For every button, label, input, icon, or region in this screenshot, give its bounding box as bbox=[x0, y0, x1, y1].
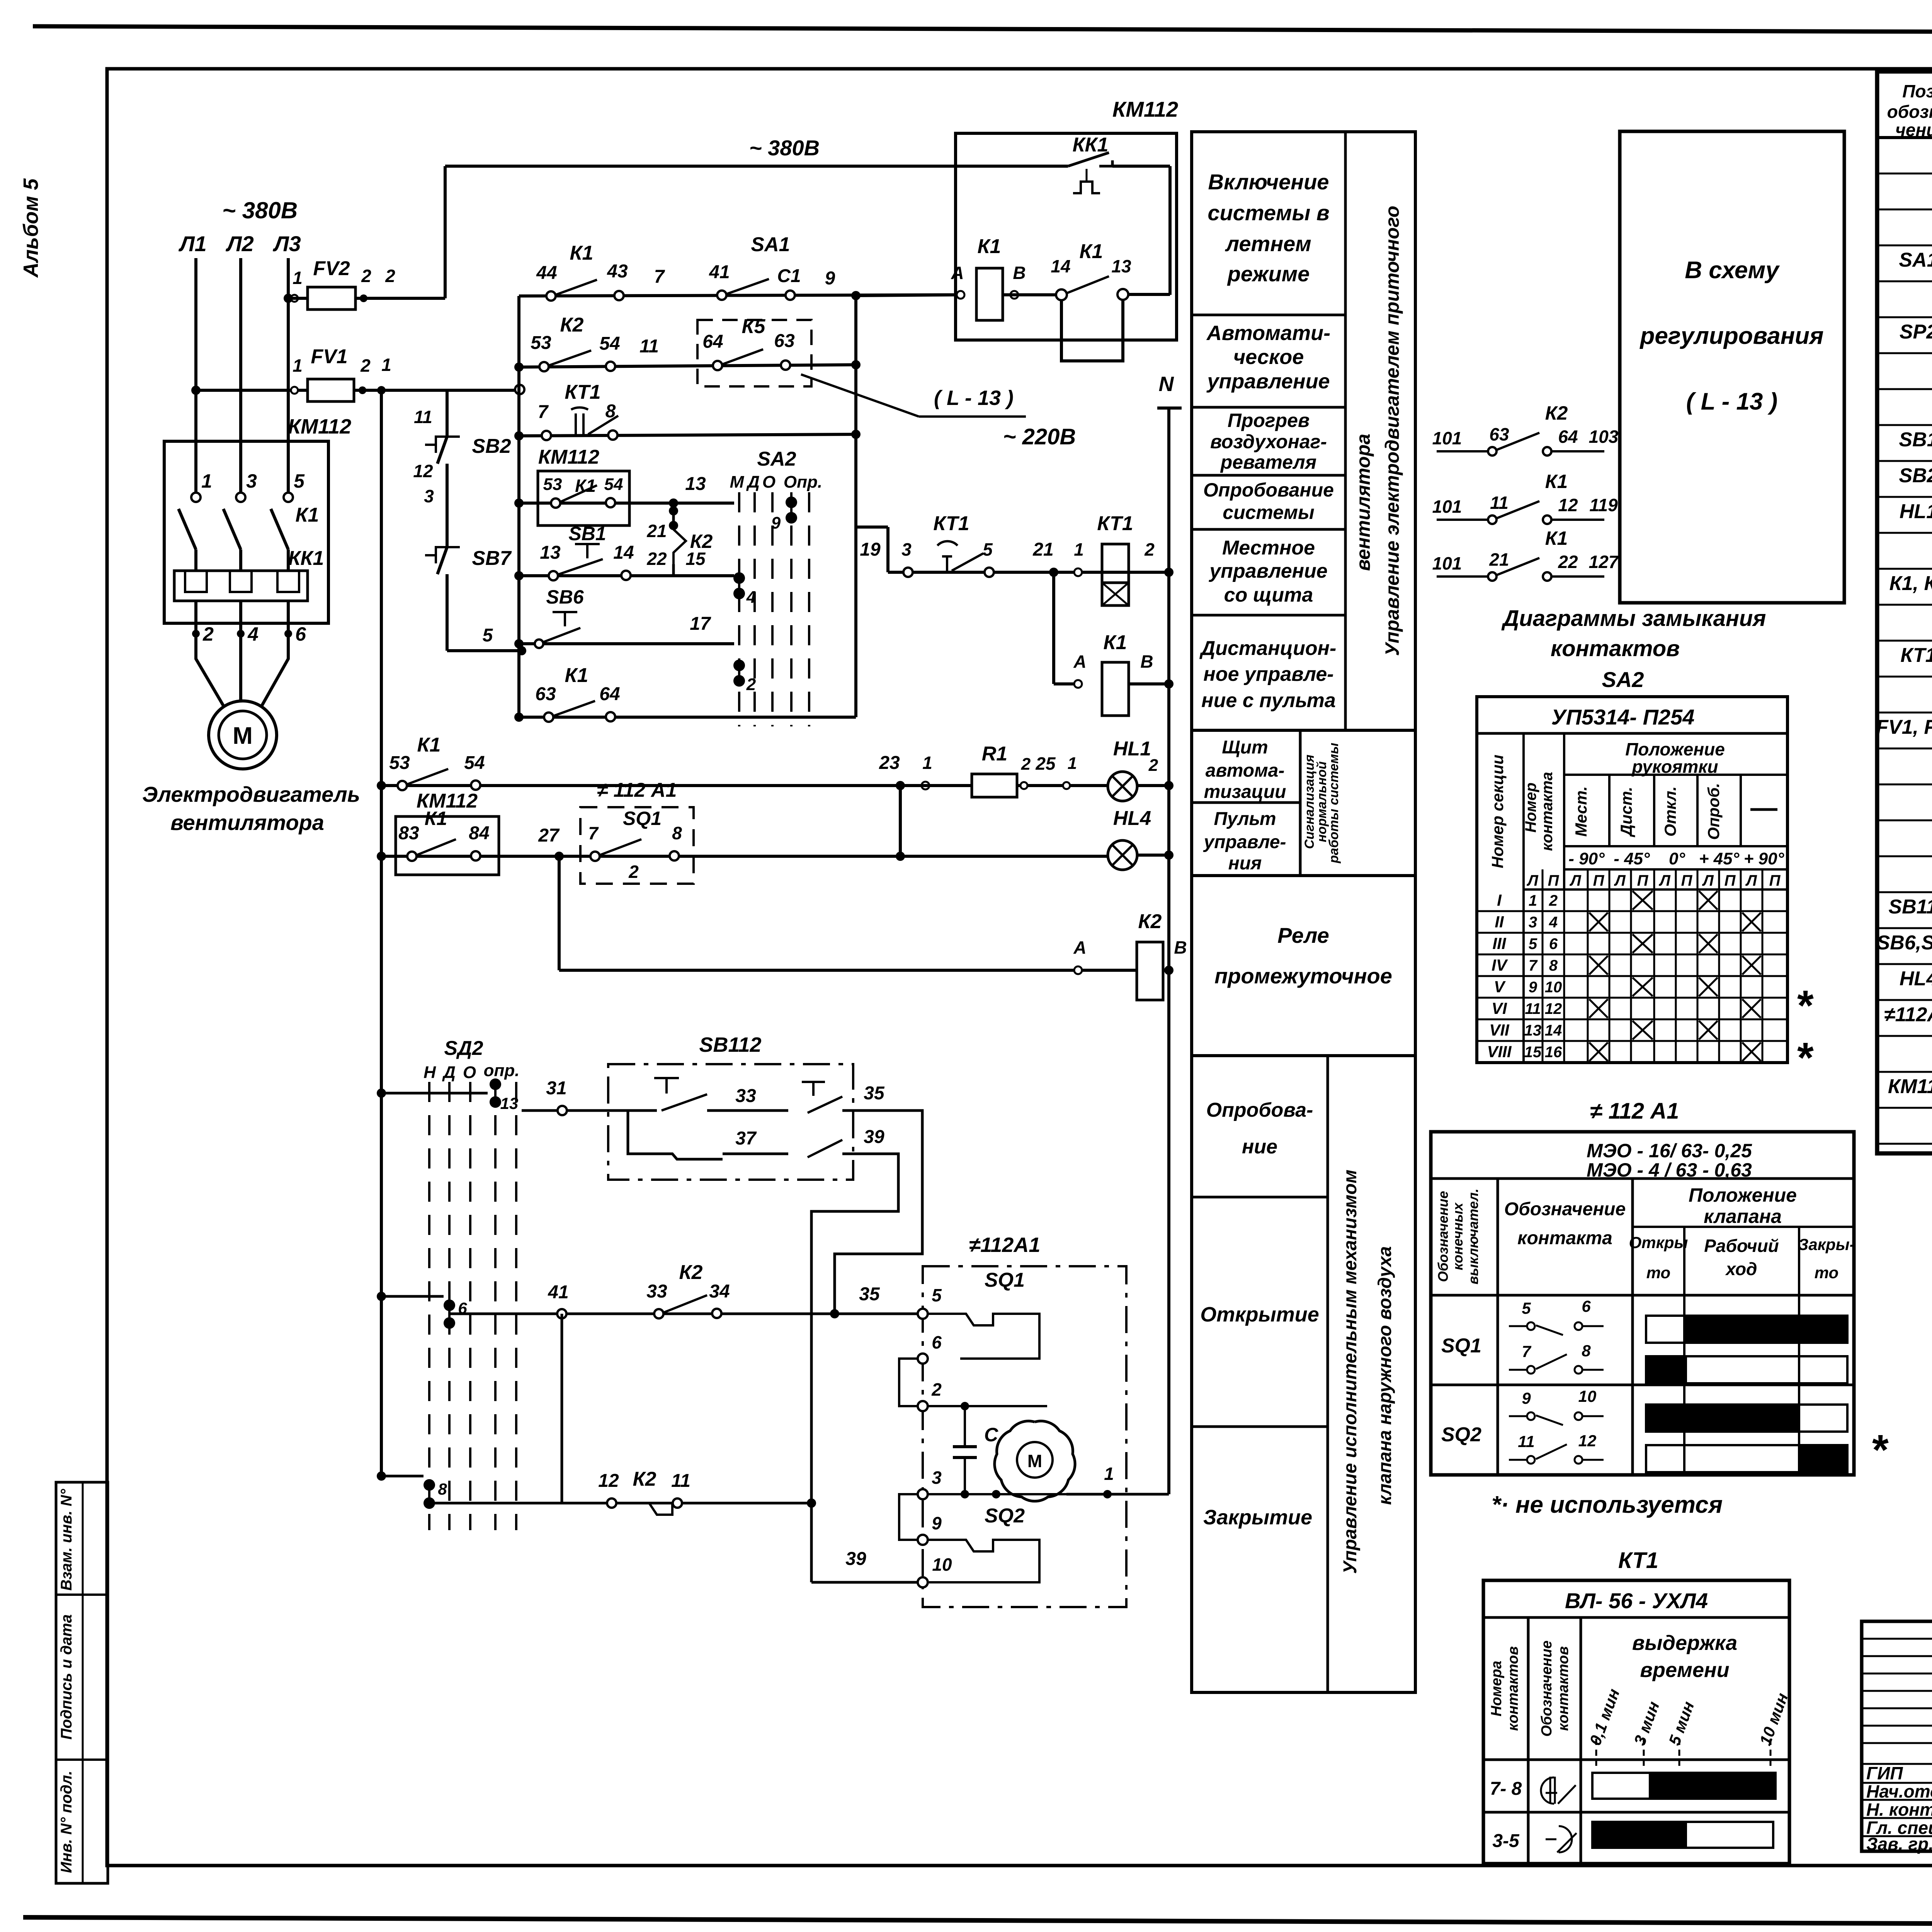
svg-text:9: 9 bbox=[771, 514, 781, 532]
svg-text:*· не используется: *· не используется bbox=[1492, 1492, 1723, 1518]
svg-text:*: * bbox=[1796, 982, 1814, 1029]
svg-text:ГИП: ГИП bbox=[1866, 1763, 1903, 1783]
svg-text:А: А bbox=[951, 263, 964, 283]
svg-text:В: В bbox=[1013, 263, 1026, 283]
svg-text:Реле: Реле bbox=[1277, 923, 1329, 947]
svg-text:Н: Н bbox=[423, 1063, 436, 1082]
svg-text:6: 6 bbox=[295, 623, 306, 645]
svg-text:Управление электродвигателем: Управление электродвигателем приточного bbox=[1381, 206, 1403, 656]
svg-text:работы системы: работы системы bbox=[1327, 743, 1341, 864]
svg-text:0°: 0° bbox=[1669, 849, 1685, 868]
svg-text:М: М bbox=[730, 473, 745, 492]
svg-text:5: 5 bbox=[1529, 935, 1537, 952]
svg-text:П: П bbox=[1637, 872, 1649, 889]
svg-text:управле-: управле- bbox=[1203, 832, 1286, 852]
svg-text:контакта: контакта bbox=[1517, 1228, 1612, 1248]
svg-text:ревателя: ревателя bbox=[1220, 451, 1316, 473]
svg-text:Номер: Номер bbox=[1522, 782, 1539, 833]
svg-text:2: 2 bbox=[1144, 539, 1155, 560]
svg-text:чение: чение bbox=[1895, 120, 1932, 140]
svg-text:А: А bbox=[1073, 651, 1086, 672]
svg-text:ние с пульта: ние с пульта bbox=[1201, 689, 1336, 712]
svg-text:5: 5 bbox=[1522, 1299, 1531, 1317]
svg-text:клапана: клапана bbox=[1704, 1206, 1782, 1227]
svg-text:6: 6 bbox=[1549, 935, 1558, 952]
svg-text:~ 220В: ~ 220В bbox=[1003, 424, 1076, 449]
svg-text:4: 4 bbox=[1549, 914, 1558, 931]
svg-text:К1: К1 bbox=[1080, 240, 1103, 263]
svg-text:1: 1 bbox=[201, 470, 212, 492]
svg-text:4: 4 bbox=[247, 623, 259, 645]
svg-text:3-5: 3-5 bbox=[1492, 1831, 1520, 1851]
svg-text:8: 8 bbox=[672, 823, 682, 843]
svg-text:19: 19 bbox=[860, 539, 881, 560]
svg-text:Обозначение: Обозначение bbox=[1435, 1191, 1451, 1282]
svg-text:Опроб.: Опроб. bbox=[1704, 783, 1723, 840]
svg-text:35: 35 bbox=[859, 1284, 880, 1304]
svg-text:+ 45°: + 45° bbox=[1699, 849, 1740, 868]
svg-text:Л: Л bbox=[1745, 872, 1757, 889]
svg-text:SQ1: SQ1 bbox=[985, 1269, 1025, 1291]
svg-text:С1: С1 bbox=[777, 266, 801, 286]
svg-text:SА2: SА2 bbox=[1602, 667, 1644, 692]
svg-text:SВ7: SВ7 bbox=[472, 547, 512, 570]
svg-text:5: 5 bbox=[983, 539, 993, 560]
svg-text:41: 41 bbox=[548, 1282, 568, 1303]
svg-text:7: 7 bbox=[654, 267, 665, 287]
svg-text:КК1: КК1 bbox=[288, 547, 324, 570]
svg-text:ния: ния bbox=[1228, 853, 1262, 874]
svg-text:39: 39 bbox=[864, 1127, 884, 1147]
svg-text:выключател.: выключател. bbox=[1465, 1189, 1481, 1284]
svg-text:Пульт: Пульт bbox=[1214, 809, 1276, 829]
svg-text:VI: VI bbox=[1492, 999, 1507, 1017]
svg-text:опр.: опр. bbox=[484, 1061, 520, 1080]
svg-text:КТ1: КТ1 bbox=[1097, 512, 1133, 535]
svg-text:воздухонаг-: воздухонаг- bbox=[1210, 431, 1327, 452]
svg-text:Л2: Л2 bbox=[225, 231, 254, 256]
svg-text:Л: Л bbox=[1702, 872, 1714, 889]
svg-text:35: 35 bbox=[864, 1083, 885, 1104]
svg-text:управление: управление bbox=[1208, 560, 1327, 582]
svg-text:8: 8 bbox=[1582, 1342, 1591, 1360]
svg-text:В схему: В схему bbox=[1685, 257, 1780, 284]
svg-text:R1: R1 bbox=[982, 743, 1007, 765]
svg-text:Д: Д bbox=[442, 1063, 456, 1082]
svg-text:ние: ние bbox=[1242, 1136, 1277, 1158]
svg-text:127: 127 bbox=[1589, 552, 1619, 572]
svg-text:84: 84 bbox=[469, 823, 489, 844]
svg-text:12: 12 bbox=[1545, 1000, 1562, 1017]
svg-text:Откл.: Откл. bbox=[1661, 786, 1679, 837]
svg-text:М: М bbox=[233, 723, 253, 749]
svg-text:101: 101 bbox=[1432, 497, 1462, 517]
svg-text:КМ112: КМ112 bbox=[1888, 1075, 1932, 1098]
svg-text:103: 103 bbox=[1589, 427, 1619, 447]
svg-text:13: 13 bbox=[1524, 1022, 1542, 1039]
svg-text:Диаграммы замыкания: Диаграммы замыкания bbox=[1501, 606, 1766, 631]
svg-text:3: 3 bbox=[932, 1468, 942, 1488]
svg-text:HL4: HL4 bbox=[1113, 807, 1151, 830]
svg-text:44: 44 bbox=[536, 263, 557, 283]
svg-text:К1: К1 bbox=[565, 664, 588, 687]
svg-text:Откры: Откры bbox=[1629, 1233, 1688, 1252]
svg-text:9: 9 bbox=[932, 1513, 942, 1533]
svg-text:конечных: конечных bbox=[1450, 1202, 1466, 1270]
svg-text:летнем: летнем bbox=[1225, 231, 1311, 256]
svg-text:1: 1 bbox=[293, 355, 303, 376]
svg-text:7: 7 bbox=[588, 823, 599, 843]
svg-text:III: III bbox=[1492, 934, 1506, 952]
svg-text:11: 11 bbox=[1525, 1000, 1541, 1017]
svg-text:39: 39 bbox=[845, 1549, 866, 1569]
svg-text:О: О bbox=[762, 473, 776, 492]
svg-text:21: 21 bbox=[1489, 549, 1509, 570]
svg-text:SВ1: SВ1 bbox=[568, 523, 606, 544]
svg-text:13: 13 bbox=[685, 474, 706, 494]
svg-text:11: 11 bbox=[639, 336, 659, 357]
svg-text:*: * bbox=[1796, 1034, 1814, 1082]
svg-text:34: 34 bbox=[709, 1281, 730, 1302]
svg-text:64: 64 bbox=[1558, 427, 1578, 447]
svg-text:64: 64 bbox=[702, 332, 723, 352]
svg-text:119: 119 bbox=[1589, 495, 1618, 515]
svg-text:Обозначение: Обозначение bbox=[1539, 1641, 1555, 1737]
svg-text:2: 2 bbox=[360, 355, 371, 376]
svg-text:9: 9 bbox=[825, 268, 835, 289]
svg-text:11: 11 bbox=[1490, 493, 1509, 513]
svg-text:Л: Л bbox=[1526, 872, 1539, 889]
svg-text:УП5314- П254: УП5314- П254 bbox=[1551, 705, 1695, 729]
svg-text:HL4: HL4 bbox=[1900, 968, 1932, 990]
svg-text:Открытие: Открытие bbox=[1200, 1303, 1319, 1326]
svg-text:6: 6 bbox=[932, 1332, 942, 1352]
svg-text:2: 2 bbox=[385, 266, 395, 286]
svg-text:14: 14 bbox=[1545, 1022, 1562, 1039]
svg-text:К1: К1 bbox=[570, 242, 594, 264]
svg-text:ход: ход bbox=[1725, 1259, 1757, 1279]
svg-text:IV: IV bbox=[1492, 956, 1508, 974]
svg-text:10: 10 bbox=[1545, 979, 1562, 996]
svg-text:управление: управление bbox=[1206, 370, 1330, 393]
svg-text:≠112А1: ≠112А1 bbox=[969, 1233, 1041, 1257]
svg-text:Л3: Л3 bbox=[272, 231, 301, 256]
svg-text:Л: Л bbox=[1614, 872, 1626, 889]
svg-text:Н. контр.: Н. контр. bbox=[1866, 1799, 1932, 1820]
svg-text:1: 1 bbox=[293, 268, 303, 288]
svg-text:П: П bbox=[1681, 872, 1693, 889]
svg-text:промежуточное: промежуточное bbox=[1214, 964, 1392, 988]
svg-text:3: 3 bbox=[246, 470, 257, 492]
svg-text:5: 5 bbox=[483, 625, 493, 646]
svg-text:13: 13 bbox=[540, 543, 561, 563]
svg-text:9: 9 bbox=[1529, 979, 1537, 996]
svg-text:SВ6: SВ6 bbox=[546, 586, 584, 608]
svg-text:14: 14 bbox=[1051, 256, 1070, 276]
svg-text:5: 5 bbox=[932, 1285, 942, 1305]
svg-text:V: V bbox=[1494, 978, 1506, 996]
svg-text:обозна-: обозна- bbox=[1887, 102, 1932, 122]
svg-text:N: N bbox=[1159, 372, 1174, 396]
svg-text:2: 2 bbox=[628, 862, 639, 882]
svg-text:контактов: контактов bbox=[1551, 636, 1680, 661]
svg-text:31: 31 bbox=[546, 1078, 566, 1099]
svg-text:системы: системы bbox=[1223, 502, 1314, 523]
svg-text:17: 17 bbox=[690, 614, 711, 634]
svg-text:вентилятора: вентилятора bbox=[1352, 434, 1374, 571]
svg-text:23: 23 bbox=[879, 753, 900, 773]
svg-text:2: 2 bbox=[361, 266, 371, 286]
svg-text:А: А bbox=[1073, 937, 1086, 957]
svg-text:С: С bbox=[984, 1424, 998, 1446]
svg-text:SB1: SB1 bbox=[1899, 429, 1932, 451]
svg-text:13: 13 bbox=[500, 1094, 519, 1112]
svg-text:11: 11 bbox=[414, 407, 432, 427]
svg-text:1: 1 bbox=[1529, 892, 1537, 909]
svg-text:Л1: Л1 bbox=[178, 231, 207, 256]
svg-text:со щита: со щита bbox=[1224, 584, 1313, 606]
svg-text:К1, К2: К1, К2 bbox=[1889, 572, 1932, 595]
svg-text:53: 53 bbox=[389, 753, 410, 773]
svg-text:SB112: SB112 bbox=[1888, 896, 1932, 918]
svg-text:К2: К2 bbox=[1545, 402, 1568, 424]
svg-text:режиме: режиме bbox=[1227, 262, 1310, 286]
svg-text:Д: Д bbox=[746, 473, 760, 492]
svg-text:2: 2 bbox=[746, 675, 756, 694]
svg-text:контактов: контактов bbox=[1505, 1646, 1521, 1731]
svg-text:SQ1: SQ1 bbox=[1441, 1335, 1481, 1357]
svg-text:Дистанцион-: Дистанцион- bbox=[1199, 637, 1337, 660]
svg-text:М: М bbox=[1027, 1451, 1042, 1471]
svg-text:54: 54 bbox=[599, 333, 620, 354]
svg-text:54: 54 bbox=[604, 475, 623, 494]
svg-text:53: 53 bbox=[543, 475, 562, 494]
svg-text:SA1: SA1 bbox=[1899, 249, 1932, 271]
svg-text:~ 380В: ~ 380В bbox=[749, 136, 820, 160]
svg-text:К2: К2 bbox=[633, 1468, 656, 1490]
svg-text:вентилятора: вентилятора bbox=[170, 810, 324, 835]
svg-text:2: 2 bbox=[1021, 755, 1031, 774]
svg-text:SД2: SД2 bbox=[444, 1037, 483, 1060]
svg-text:3: 3 bbox=[901, 539, 912, 560]
svg-text:ческое: ческое bbox=[1233, 345, 1304, 369]
svg-text:П: П bbox=[1593, 872, 1605, 889]
svg-text:HL1: HL1 bbox=[1900, 500, 1932, 523]
svg-text:Автомати-: Автомати- bbox=[1206, 321, 1330, 345]
svg-text:SВ112: SВ112 bbox=[699, 1033, 761, 1056]
svg-text:Положение: Положение bbox=[1689, 1184, 1797, 1206]
svg-text:Закрытие: Закрытие bbox=[1203, 1506, 1312, 1529]
svg-text:Альбом 5: Альбом 5 bbox=[19, 178, 43, 278]
svg-text:Опробова-: Опробова- bbox=[1206, 1099, 1313, 1121]
svg-text:FV1: FV1 bbox=[311, 345, 347, 368]
svg-text:8: 8 bbox=[438, 1480, 447, 1498]
svg-text:Опр.: Опр. bbox=[784, 473, 822, 492]
svg-text:Нач.отд.: Нач.отд. bbox=[1866, 1781, 1932, 1801]
svg-text:3: 3 bbox=[424, 486, 434, 506]
svg-text:1: 1 bbox=[922, 753, 932, 773]
svg-text:2: 2 bbox=[1148, 756, 1158, 775]
svg-text:Опробование: Опробование bbox=[1203, 479, 1334, 501]
svg-text:6: 6 bbox=[1582, 1297, 1591, 1315]
svg-text:К1: К1 bbox=[425, 808, 447, 829]
svg-text:Л: Л bbox=[1569, 872, 1582, 889]
svg-text:Поз.: Поз. bbox=[1902, 81, 1932, 101]
svg-text:( L - 13 ): ( L - 13 ) bbox=[1686, 388, 1778, 415]
svg-text:К2: К2 bbox=[679, 1261, 703, 1284]
svg-text:9: 9 bbox=[1522, 1389, 1531, 1407]
svg-text:Зав. гр.: Зав. гр. bbox=[1866, 1834, 1932, 1854]
svg-text:4: 4 bbox=[746, 588, 756, 607]
svg-text:регулирования: регулирования bbox=[1639, 323, 1823, 349]
svg-text:П: П bbox=[1548, 872, 1560, 889]
svg-text:то: то bbox=[1646, 1264, 1670, 1282]
svg-text:15: 15 bbox=[1524, 1044, 1542, 1061]
svg-text:Номер секции: Номер секции bbox=[1488, 755, 1507, 868]
svg-text:SВ2: SВ2 bbox=[472, 435, 511, 457]
svg-text:VIII: VIII bbox=[1487, 1043, 1512, 1061]
svg-text:ное управле-: ное управле- bbox=[1203, 663, 1333, 685]
svg-text:43: 43 bbox=[607, 261, 628, 282]
svg-text:рукоятки: рукоятки bbox=[1631, 757, 1718, 777]
svg-text:К1: К1 bbox=[978, 235, 1001, 258]
svg-text:7: 7 bbox=[1522, 1342, 1531, 1361]
svg-text:К2: К2 bbox=[560, 314, 584, 336]
svg-text:Подпись и дата: Подпись и дата bbox=[58, 1614, 75, 1740]
svg-text:*: * bbox=[1871, 1426, 1889, 1474]
svg-text:+ 90°: + 90° bbox=[1744, 849, 1784, 868]
svg-text:7- 8: 7- 8 bbox=[1490, 1779, 1522, 1799]
svg-text:1: 1 bbox=[1104, 1464, 1114, 1484]
svg-text:SQ2: SQ2 bbox=[1441, 1423, 1481, 1446]
svg-text:8: 8 bbox=[1549, 957, 1558, 974]
svg-text:33: 33 bbox=[646, 1281, 667, 1302]
svg-text:FV1, FV2: FV1, FV2 bbox=[1876, 716, 1932, 738]
svg-text:21: 21 bbox=[646, 521, 667, 541]
svg-text:≠ 112 А1: ≠ 112 А1 bbox=[597, 779, 677, 801]
svg-text:КТ1: КТ1 bbox=[565, 381, 600, 403]
svg-text:27: 27 bbox=[538, 825, 560, 846]
svg-text:КМ112: КМ112 bbox=[288, 415, 351, 438]
svg-text:2: 2 bbox=[931, 1379, 942, 1400]
svg-text:Инв. N° подл.: Инв. N° подл. bbox=[58, 1771, 75, 1873]
svg-text:FV2: FV2 bbox=[313, 257, 350, 280]
svg-text:~ 380В: ~ 380В bbox=[222, 197, 298, 223]
svg-text:В: В bbox=[1140, 651, 1153, 672]
svg-text:КМ112: КМ112 bbox=[538, 446, 599, 468]
svg-text:КК1: КК1 bbox=[1073, 134, 1109, 156]
svg-text:П: П bbox=[1769, 872, 1781, 889]
svg-text:то: то bbox=[1815, 1264, 1838, 1282]
svg-text:63: 63 bbox=[535, 684, 556, 704]
svg-text:клапана наружного воздуха: клапана наружного воздуха bbox=[1375, 1246, 1395, 1505]
svg-text:Включение: Включение bbox=[1208, 170, 1329, 194]
svg-text:системы в: системы в bbox=[1207, 201, 1329, 225]
svg-text:( L - 13 ): ( L - 13 ) bbox=[934, 386, 1014, 410]
svg-text:Электродвигатель: Электродвигатель bbox=[142, 782, 360, 806]
svg-text:К1: К1 bbox=[296, 504, 319, 526]
svg-text:2: 2 bbox=[202, 623, 214, 645]
svg-text:SА1: SА1 bbox=[751, 233, 790, 256]
svg-text:Местное: Местное bbox=[1222, 537, 1315, 559]
svg-text:15: 15 bbox=[685, 549, 706, 569]
svg-text:12: 12 bbox=[413, 461, 433, 481]
svg-text:II: II bbox=[1495, 913, 1504, 931]
svg-text:22: 22 bbox=[1558, 552, 1578, 572]
svg-text:22: 22 bbox=[646, 549, 667, 569]
svg-text:3: 3 bbox=[1529, 914, 1537, 931]
svg-text:Обозначение: Обозначение bbox=[1504, 1199, 1626, 1219]
svg-text:63: 63 bbox=[1489, 424, 1509, 444]
svg-text:Мест.: Мест. bbox=[1572, 786, 1590, 837]
svg-text:13: 13 bbox=[1111, 256, 1131, 276]
svg-text:53: 53 bbox=[531, 333, 551, 353]
svg-text:SB6,SB7: SB6,SB7 bbox=[1877, 932, 1932, 954]
svg-text:1: 1 bbox=[1068, 754, 1077, 773]
svg-text:О: О bbox=[463, 1063, 476, 1082]
svg-text:К1: К1 bbox=[1545, 527, 1568, 549]
svg-text:≠112А1: ≠112А1 bbox=[1884, 1003, 1932, 1026]
svg-text:7: 7 bbox=[1529, 957, 1538, 974]
svg-text:Взам. инв. N°: Взам. инв. N° bbox=[58, 1488, 75, 1590]
svg-text:К1: К1 bbox=[1104, 631, 1127, 654]
svg-text:33: 33 bbox=[735, 1086, 756, 1106]
svg-text:1: 1 bbox=[1074, 539, 1084, 560]
svg-text:1: 1 bbox=[381, 355, 391, 375]
svg-text:12: 12 bbox=[598, 1471, 619, 1491]
svg-text:SQ2: SQ2 bbox=[985, 1505, 1025, 1527]
svg-text:Щит: Щит bbox=[1222, 737, 1268, 758]
svg-text:5: 5 bbox=[294, 470, 305, 492]
svg-text:11: 11 bbox=[671, 1471, 690, 1491]
svg-text:ВЛ- 56 - УХЛ4: ВЛ- 56 - УХЛ4 bbox=[1565, 1588, 1708, 1613]
svg-text:Управление исполнительным ме: Управление исполнительным механизмом bbox=[1340, 1170, 1361, 1574]
svg-text:В: В bbox=[1174, 937, 1187, 957]
svg-text:тизации: тизации bbox=[1204, 782, 1286, 802]
svg-text:2: 2 bbox=[1549, 892, 1558, 909]
svg-text:КМ112: КМ112 bbox=[1112, 97, 1178, 121]
svg-text:выдержка: выдержка bbox=[1632, 1631, 1737, 1655]
svg-text:8: 8 bbox=[605, 401, 616, 422]
svg-text:16: 16 bbox=[1545, 1044, 1562, 1061]
svg-text:≠ 112 А1: ≠ 112 А1 bbox=[1590, 1099, 1679, 1124]
svg-text:SА2: SА2 bbox=[757, 448, 796, 470]
svg-text:12: 12 bbox=[1578, 1432, 1597, 1450]
svg-text:КТ1: КТ1 bbox=[933, 512, 969, 535]
svg-text:П: П bbox=[1725, 872, 1736, 889]
svg-text:54: 54 bbox=[464, 753, 485, 773]
svg-text:автома-: автома- bbox=[1206, 760, 1285, 781]
svg-text:КТ1: КТ1 bbox=[1618, 1548, 1658, 1573]
svg-text:Закры-: Закры- bbox=[1798, 1235, 1855, 1253]
svg-text:41: 41 bbox=[709, 262, 730, 282]
svg-text:7: 7 bbox=[538, 402, 549, 422]
svg-text:11: 11 bbox=[1518, 1432, 1535, 1451]
svg-text:10: 10 bbox=[932, 1554, 952, 1575]
svg-text:Прогрев: Прогрев bbox=[1228, 410, 1310, 431]
svg-text:SB2: SB2 bbox=[1899, 464, 1932, 487]
svg-text:I: I bbox=[1497, 891, 1502, 909]
svg-text:К1: К1 bbox=[417, 734, 441, 756]
svg-text:83: 83 bbox=[398, 823, 419, 844]
svg-text:МЭО - 16/ 63- 0,25: МЭО - 16/ 63- 0,25 bbox=[1587, 1140, 1752, 1162]
svg-text:SQ1: SQ1 bbox=[623, 808, 662, 829]
svg-text:Дист.: Дист. bbox=[1617, 787, 1635, 837]
svg-text:Л: Л bbox=[1658, 872, 1671, 889]
svg-text:37: 37 bbox=[735, 1128, 757, 1149]
svg-text:времени: времени bbox=[1640, 1658, 1729, 1682]
svg-text:25: 25 bbox=[1035, 753, 1056, 774]
